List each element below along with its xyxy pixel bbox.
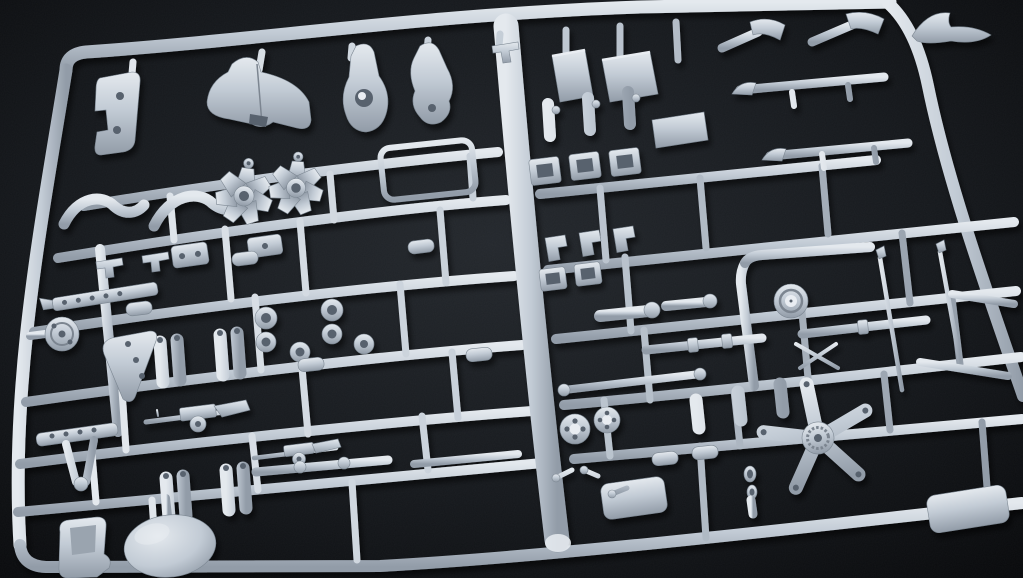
hub-hole: [59, 331, 66, 338]
carb-body: [171, 242, 210, 269]
wheel-hub: [570, 424, 581, 435]
tire-stub: [166, 498, 168, 516]
spoked-wheel-part-1: [560, 414, 590, 444]
sprue-photo: [0, 0, 1023, 578]
wheel-hole: [598, 418, 603, 423]
boss-pip: [790, 300, 793, 303]
ring-hole: [327, 305, 337, 315]
fork-hole: [64, 432, 69, 437]
barrel-collar: [338, 457, 350, 469]
door-hole: [139, 373, 145, 379]
axle-end: [694, 368, 706, 380]
fork-hole: [78, 430, 83, 435]
pad: [691, 445, 718, 461]
door-hole: [133, 357, 139, 363]
fork-hole: [92, 428, 97, 433]
shackle-body: [751, 500, 753, 514]
filler-cap-boss-part: [774, 284, 808, 318]
oleo-hole: [157, 337, 163, 343]
oleo-hole: [223, 465, 229, 471]
bracket-hole: [113, 126, 121, 134]
cylinder-body: [666, 302, 706, 306]
pad: [651, 451, 678, 467]
wheel-hole: [572, 434, 577, 439]
pad: [297, 357, 324, 373]
center-spine-cut-end: [545, 534, 571, 552]
seat-pan-shadow: [70, 525, 96, 555]
link-hole: [750, 489, 755, 496]
frame-hole: [545, 272, 560, 285]
frame-hole: [536, 163, 553, 178]
lever-pivot: [552, 474, 560, 482]
wheel-hole: [580, 426, 585, 431]
cylinder-body: [600, 311, 648, 316]
barrel-collar: [294, 461, 306, 473]
bracket-hole: [116, 92, 124, 100]
link-hole: [747, 470, 753, 479]
pump-tab: [552, 106, 560, 114]
oleo-hole: [163, 473, 169, 479]
photo-canvas: [0, 0, 1023, 578]
oleo-hole: [240, 463, 246, 469]
wheel-hole: [605, 425, 610, 430]
axle-end: [558, 384, 570, 396]
oleo-hole: [180, 471, 186, 477]
frame-hole: [580, 267, 595, 280]
oleo-hole: [234, 328, 240, 334]
wheel-hole: [564, 426, 569, 431]
wheel-hole: [605, 411, 610, 416]
drum-hole: [195, 421, 201, 427]
cylinder-cap: [644, 302, 660, 318]
hub-arm: [30, 334, 45, 336]
ring-hole: [328, 330, 337, 339]
coupling-collar: [857, 320, 868, 335]
fairing-hole: [428, 104, 436, 112]
wheel-hole: [612, 418, 617, 423]
bucket-seat-part: [59, 517, 110, 578]
lever-pivot: [608, 490, 616, 498]
gun-sight: [157, 410, 158, 416]
ring-hole: [262, 338, 271, 347]
ring-hole: [296, 348, 305, 357]
pump-tab: [592, 100, 600, 108]
lever-pivot: [580, 466, 588, 474]
frame-hole: [576, 158, 593, 173]
oleo-hole: [174, 335, 180, 341]
coupling-collar: [721, 334, 732, 349]
frame-hole: [616, 154, 633, 169]
hub-hole: [68, 340, 73, 345]
hub-hole: [52, 324, 57, 329]
coupling-collar: [687, 338, 698, 353]
oleo-hole: [217, 330, 223, 336]
door-hole: [125, 341, 131, 347]
cylinder-cap: [703, 294, 717, 308]
wheel-hub: [602, 415, 612, 425]
wheel-hole: [572, 418, 577, 423]
carburetor-block-part-1: [171, 242, 210, 269]
fork-hole: [50, 434, 55, 439]
ring-hole: [360, 340, 368, 348]
fork-foot: [74, 477, 88, 491]
pump-tab: [632, 94, 640, 102]
spoked-wheel-part-2: [594, 407, 620, 433]
pad: [465, 347, 492, 363]
drop-tank-highlight: [358, 92, 366, 100]
ring-hole: [261, 313, 271, 323]
